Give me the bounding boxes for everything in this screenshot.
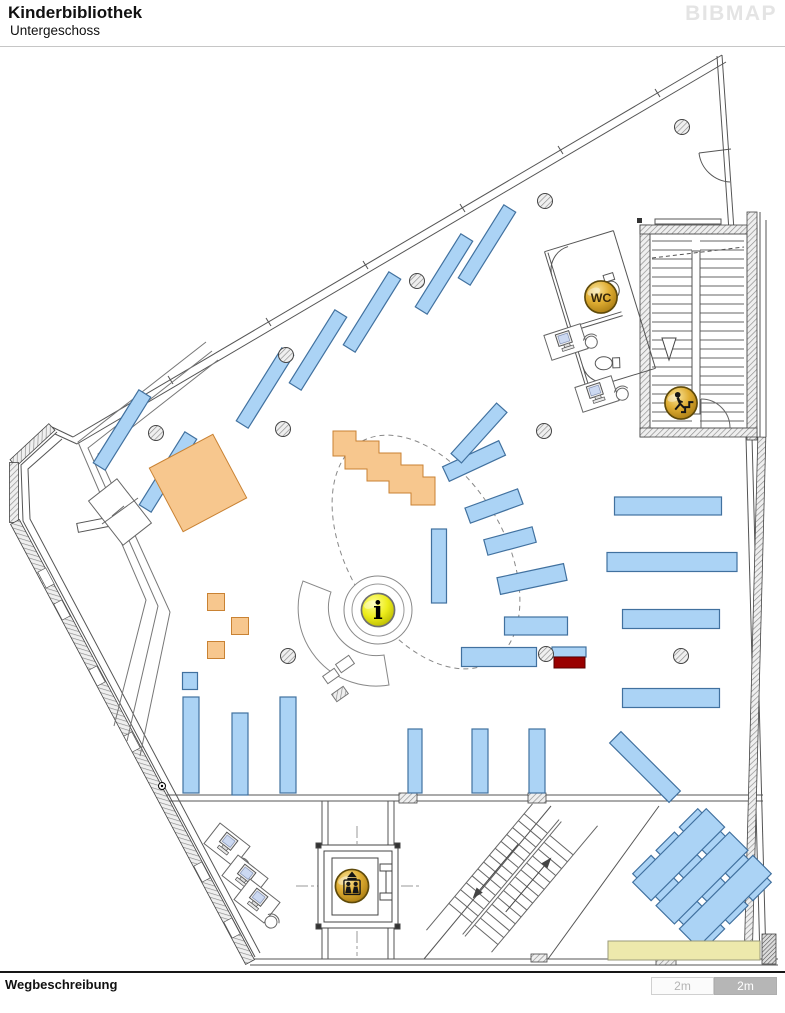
bookshelf	[497, 564, 567, 595]
bookshelf	[505, 617, 568, 635]
column	[539, 647, 554, 662]
header: Kinderbibliothek Untergeschoss BIBMAP	[0, 0, 785, 47]
scale-segment-dark: 2m	[714, 977, 777, 995]
bookshelf	[183, 697, 199, 793]
column	[281, 649, 296, 664]
bookshelf	[289, 310, 346, 390]
play-area	[208, 642, 225, 659]
bookshelf	[343, 272, 400, 352]
stairwell-stairs	[652, 241, 744, 421]
bookshelf	[615, 497, 722, 515]
bookshelf	[623, 610, 720, 629]
column	[674, 649, 689, 664]
svg-text:i: i	[373, 596, 383, 626]
column	[537, 424, 552, 439]
computer-station	[544, 320, 600, 361]
bookshelf	[432, 529, 447, 603]
bookshelf	[610, 732, 681, 803]
stairwell-ledge	[655, 219, 721, 224]
page-title: Kinderbibliothek	[8, 4, 785, 22]
counter	[608, 941, 760, 960]
column	[538, 194, 553, 209]
bookshelf	[552, 647, 586, 657]
ramp-lines	[78, 342, 218, 756]
play-steps	[333, 431, 435, 505]
bookshelf	[183, 673, 198, 690]
bookshelf	[607, 553, 737, 572]
floor-subtitle: Untergeschoss	[10, 23, 785, 38]
floorplan-map[interactable]: WCi	[0, 0, 785, 1011]
bookshelf	[408, 729, 422, 793]
bookshelf	[93, 390, 150, 470]
bookshelf	[529, 729, 545, 793]
scale-segment-light: 2m	[651, 977, 714, 995]
wc-icon[interactable]: WC	[585, 281, 617, 313]
column	[149, 426, 164, 441]
svg-text:WC: WC	[591, 291, 612, 305]
toilet	[595, 356, 620, 370]
column	[675, 120, 690, 135]
column	[410, 274, 425, 289]
footer: Wegbeschreibung 2m 2m	[0, 971, 785, 1013]
column	[276, 422, 291, 437]
scale-bar: 2m 2m	[651, 977, 777, 995]
bookshelf	[465, 489, 523, 523]
wall-detail-dot	[161, 785, 163, 787]
play-area	[149, 434, 246, 531]
stairs-up-icon[interactable]	[665, 387, 697, 419]
info-desk	[298, 576, 412, 702]
elevator-icon[interactable]	[335, 869, 368, 902]
bookshelf	[280, 697, 296, 793]
info-icon[interactable]: i	[361, 593, 394, 626]
bookshelf	[484, 527, 536, 555]
bookshelf	[472, 729, 488, 793]
bibmap-logo: BIBMAP	[685, 2, 777, 26]
bookshelf	[232, 713, 248, 795]
bookshelf	[462, 648, 537, 667]
diagonal-stairs	[426, 785, 597, 972]
play-area	[208, 594, 225, 611]
highlighted-shelf	[554, 657, 585, 668]
column	[279, 348, 294, 363]
bookshelf	[623, 689, 720, 708]
wall-post	[637, 218, 642, 223]
play-area	[232, 618, 249, 635]
